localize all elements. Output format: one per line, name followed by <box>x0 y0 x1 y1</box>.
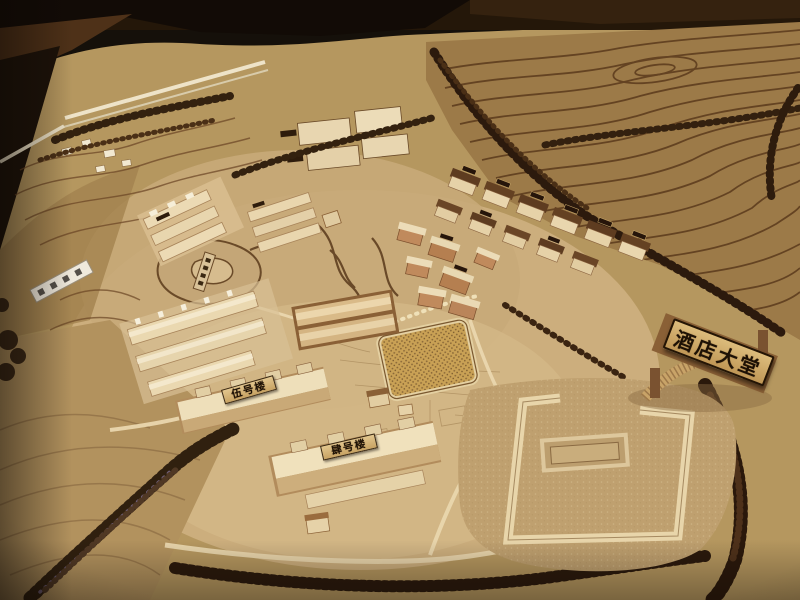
site-model-scene <box>0 0 800 600</box>
model-photo: 酒店大堂 伍号楼 肆号楼 <box>0 0 800 600</box>
